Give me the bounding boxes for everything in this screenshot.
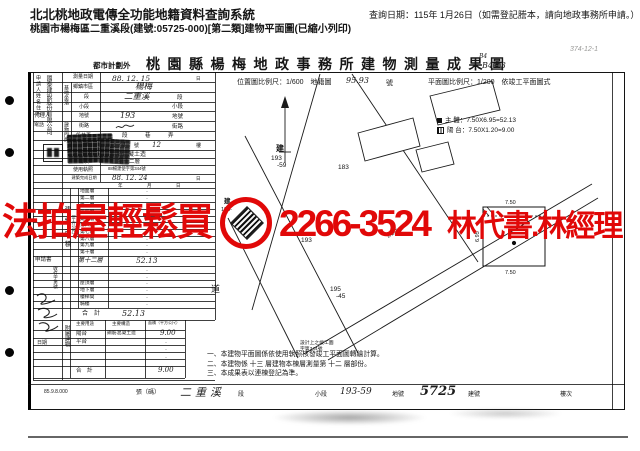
floor-no-value: 12: [152, 142, 161, 149]
floor-name: 樓梯間: [80, 296, 94, 301]
floor-area: ·: [146, 281, 148, 287]
storey-label: 層次: [79, 160, 89, 165]
grid-line: [33, 338, 185, 339]
grid-line: [33, 82, 215, 83]
grid-line: [33, 378, 185, 379]
page: 北北桃地政電傳全功能地籍資料查詢系統 查詢日期：115年 1月26日（如需登記謄…: [0, 0, 640, 451]
document-subtitle: 桃園市楊梅區二重溪段(建號:05725-000)[第二類]建物平面圖(已縮小列印…: [30, 25, 351, 35]
scan-smudge: [272, 410, 427, 425]
subsection-label: 小段: [79, 105, 89, 110]
grid-line: [33, 380, 215, 381]
position-sheet-value: 95.93: [346, 77, 369, 85]
completion-value: 88. 12. 24: [112, 175, 148, 182]
north-arrow-icon: [281, 96, 289, 108]
punch-dot: [5, 286, 14, 295]
legend-formula: 7.50X6.95=52.13: [466, 117, 516, 124]
phone-label: 電話: [34, 123, 44, 128]
print-code: 85.9.8.000: [44, 390, 68, 395]
grid-line: [33, 280, 215, 281]
footer-building-value: 5725: [420, 385, 456, 398]
legend-row-main: 主 體：7.50X6.95=52.13: [437, 118, 516, 125]
sheet-title: 桃園縣楊梅地政事務所建物測量成果圖: [146, 57, 512, 71]
lot-suffix: 地號: [172, 115, 183, 121]
legend-label: 主 體: [445, 117, 460, 124]
township-label: 鄉鎮市區: [73, 85, 93, 90]
footer-lot-label: 地號: [392, 392, 404, 398]
grid-line: [33, 174, 215, 175]
street-label: 街路: [79, 124, 89, 129]
scan-smudge: [448, 408, 563, 419]
grid-line: [33, 352, 185, 353]
annex-total-label: 合 計: [76, 369, 93, 375]
annex-total-value: 9.00: [158, 367, 174, 374]
legend-row-balcony: 陽 台：7.50X1.20=9.00: [437, 127, 514, 135]
parcel-195b-label: -45: [336, 293, 346, 300]
parcel-build-label: 建: [275, 143, 285, 153]
lane-label: 段巷弄: [76, 134, 91, 139]
parcel-183-label: 183: [338, 164, 349, 171]
annex-use: 陽台: [76, 332, 87, 338]
annex-area-handwritten: 9.00: [160, 330, 176, 337]
completion-label: 建築完成日期: [72, 176, 97, 180]
footer-section-value: 二重溪: [180, 387, 225, 398]
receipt-label: 申請書: [35, 258, 52, 264]
section-value: 二重溪: [124, 93, 150, 102]
query-date: 查詢日期：115年 1月26日（如需登記謄本，請向地政事務所申請。）: [369, 11, 639, 20]
floor-area: ·: [146, 288, 148, 294]
watermark-ring-icon: [220, 197, 272, 249]
diamond-badge-icon: [230, 206, 264, 240]
annex-header-use: 主要用途: [76, 322, 94, 327]
floor-area: ·: [146, 302, 148, 308]
street-scribble: [115, 123, 135, 131]
hatched-square-icon: [437, 127, 444, 134]
floor-name: 屋頂層: [80, 282, 94, 287]
page-bottom-rule: [28, 436, 628, 438]
pencil-note: 374-12-1: [570, 46, 598, 53]
footer-section-label: 段: [238, 392, 244, 398]
grid-line: [33, 330, 185, 331]
floor-name: 地下層: [80, 289, 94, 294]
grid-line: [33, 359, 185, 360]
grid-line: [33, 287, 215, 288]
street-suffix: 街路: [172, 125, 183, 131]
floor-area: ·: [146, 295, 148, 301]
page-code-label: 張（碼）: [136, 390, 160, 396]
grid-line: [33, 188, 215, 189]
note-3: 三、本成果表以連棟登記為準。: [207, 371, 302, 378]
survey-date-unit: 日: [196, 77, 201, 82]
legend-formula: 7.50X1.20=9.00: [468, 127, 514, 134]
handwritten-code-small: B4: [479, 54, 487, 60]
material-label: 主要建材: [73, 152, 93, 157]
survey-date-label: 測量日期: [73, 75, 93, 80]
agent-label: 代理人: [34, 114, 51, 120]
grid-line: [105, 320, 106, 378]
note-2: 二、本建物係 十三 層建物本棟層測量第 十二 層部份。: [207, 362, 371, 369]
township-value: 楊梅: [135, 83, 152, 92]
grid-line: [33, 111, 215, 112]
lane-suffix: 段 巷 弄: [122, 134, 182, 140]
grid-line: [33, 345, 185, 346]
floor-scale-label: 平面圖比例尺：1/200 依竣工平面圖式: [428, 79, 551, 86]
footer-subsection-label: 小段: [315, 392, 327, 398]
punch-dot: [5, 96, 14, 105]
grid-line: [33, 102, 215, 103]
grid-line: [145, 320, 146, 378]
watermark-text-right: 林代書.林經理: [447, 212, 621, 242]
position-sheet-suffix: 號: [386, 80, 393, 87]
grid-line: [33, 92, 215, 93]
grid-line: [33, 308, 215, 309]
grid-line: [33, 158, 215, 159]
lot-value: 193: [120, 112, 135, 120]
floor-name-handwritten: 第十二層: [78, 258, 103, 264]
completion-unit: 日: [196, 177, 201, 182]
grid-line: [185, 320, 186, 378]
handwritten-code: B4-13: [482, 62, 506, 70]
grid-line: [33, 366, 185, 367]
lot-label: 地號: [79, 114, 89, 119]
grid-line: [33, 150, 215, 151]
address-group-label: 建物門牌: [63, 122, 68, 149]
survey-date-value: 88. 12. 15: [112, 75, 150, 83]
grid-line: [33, 273, 215, 274]
footer-floor-label: 樓次: [560, 392, 572, 398]
grid-line: [33, 140, 215, 141]
grid-line: [33, 294, 215, 295]
grid-line: [33, 121, 215, 122]
license-label: 使用執照: [73, 168, 93, 173]
plan-zone-label: 都市計劃外: [93, 62, 131, 70]
parcel-sub-label: -59: [277, 162, 287, 169]
small-stamp: [43, 144, 63, 162]
dim-bottom: 7.50: [505, 270, 516, 276]
grid-line: [100, 72, 101, 182]
number-value: 374: [112, 141, 126, 149]
number-suffix: 號: [134, 144, 139, 149]
grid-line: [71, 82, 72, 150]
handwritten-scribble: [34, 288, 61, 336]
annex-header-area: 面積（平方公尺）: [148, 321, 182, 326]
parcel-no-label: 193: [271, 155, 282, 162]
number-label: 號: [84, 143, 89, 148]
parcel-195-label: 195: [330, 286, 341, 293]
solid-square-icon: [437, 118, 442, 123]
position-scale-label: 位置圖比例尺：1/600 地籍圖: [237, 79, 332, 86]
system-title: 北北桃地政電傳全功能地籍資料查詢系統: [30, 9, 255, 22]
footer-lot-value: 193-59: [340, 388, 372, 397]
area-total-value: 52.13: [122, 310, 145, 318]
annex-header-structure: 主要構造: [112, 322, 130, 327]
grid-line: [33, 182, 215, 183]
watermark-phone: 2266-3524: [279, 205, 429, 242]
annex-structure: 鋼筋混凝土造: [107, 332, 136, 337]
grid-line: [33, 165, 215, 166]
grid-line: [33, 301, 215, 302]
punch-dot: [5, 148, 14, 157]
area-total-label: 合 計: [82, 311, 100, 317]
footer-divider: [28, 384, 625, 385]
watermark: 法拍屋輕鬆買 2266-3524 林代書.林經理: [0, 194, 640, 258]
material-value: 鋼筋混凝土造: [110, 152, 146, 158]
floor-name: 騎樓: [80, 303, 90, 308]
grid-line: [70, 320, 71, 378]
punch-dot: [5, 348, 14, 357]
watermark-text-left: 法拍屋輕鬆買: [2, 204, 212, 242]
subsection-suffix: 小段: [172, 105, 183, 111]
license-value: 88楊建使字第344號: [108, 167, 166, 172]
grid-line: [33, 131, 215, 132]
floor-area-handwritten: 52.13: [136, 257, 157, 265]
section-label: 段: [84, 95, 89, 100]
footer-building-label: 建號: [468, 392, 480, 398]
grid-line: [33, 266, 215, 267]
floor-no-suffix: 樓: [196, 144, 201, 149]
legend-label: 陽 台: [447, 127, 462, 134]
section-suffix: 段: [177, 96, 183, 102]
grid-line: [33, 320, 215, 321]
note-1: 一、本建物平面圖係依使用執照核發竣工平面圖轉繪計算。: [207, 352, 384, 359]
